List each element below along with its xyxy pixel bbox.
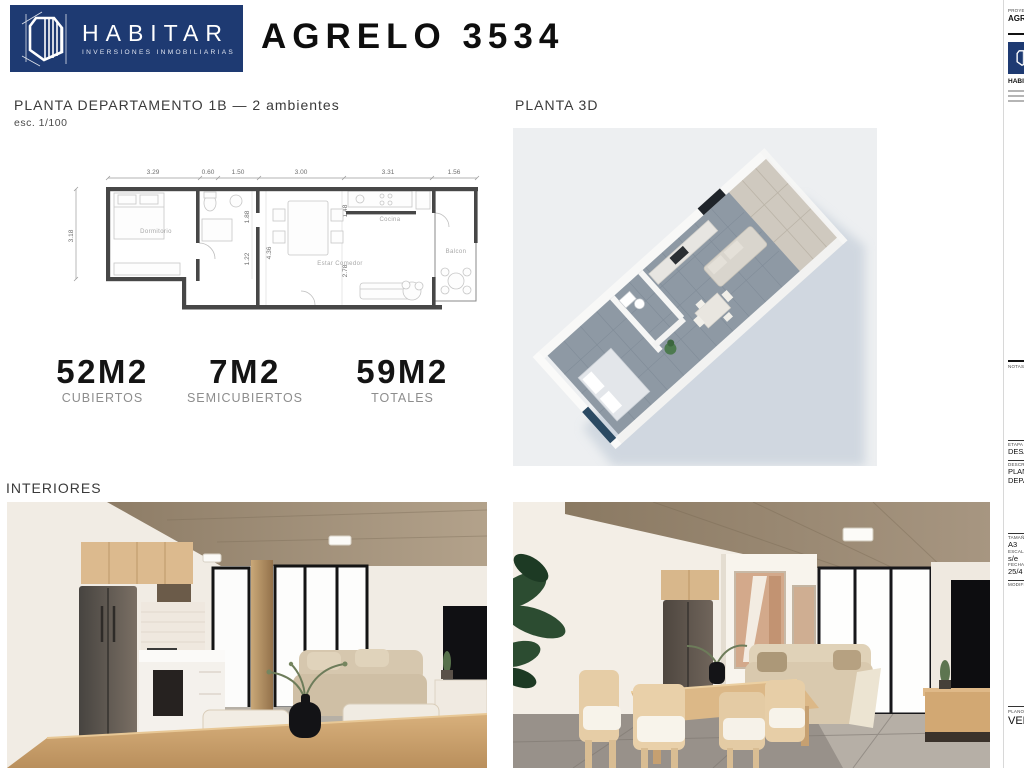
dim-inner-3: 4.36: [266, 246, 273, 259]
titleblock-notes-label: NOTAS: [1008, 364, 1024, 369]
area-cubiertos: 52M2 CUBIERTOS: [40, 355, 165, 405]
titleblock-date-value: 25/4: [1008, 567, 1023, 576]
floor-plan-drawing: 3.29 0.60 1.50 3.00 3.31 1.56 3.18 1.88 …: [60, 165, 490, 340]
habitar-house-icon: [18, 10, 76, 68]
area-semicubiertos-value: 7M2: [209, 355, 281, 388]
titleblock-sheet-value: VENTA: [1008, 715, 1024, 727]
titleblock-divider: [1008, 533, 1024, 534]
brochure-sheet: HABITAR INVERSIONES INMOBILIARIAS AGRELO…: [0, 0, 1024, 768]
interiores-title: INTERIORES: [6, 480, 102, 496]
area-totales-label: TOTALES: [371, 391, 434, 405]
dim-top-6: 1.56: [448, 169, 461, 176]
titleblock-brand: HABITAR: [1008, 78, 1024, 85]
room-label-dormitorio: Dormitorio: [140, 229, 172, 235]
area-cubiertos-label: CUBIERTOS: [62, 391, 143, 405]
titleblock-address-line: [1008, 95, 1024, 97]
titleblock-divider: [1008, 460, 1024, 461]
titleblock-size-value: A3: [1008, 540, 1017, 549]
titleblock-description-value: PLANTA: [1008, 467, 1024, 476]
brand-subtitle: INVERSIONES INMOBILIARIAS: [82, 49, 235, 56]
titleblock-address-line: [1008, 100, 1024, 102]
brand-name: HABITAR: [82, 22, 235, 45]
planta-3d-render: [513, 128, 877, 466]
area-cubiertos-value: 52M2: [56, 355, 149, 388]
room-label-balcon: Balcon: [446, 249, 467, 255]
dim-inner-1: 1.88: [244, 210, 251, 223]
interior-render-living: [513, 502, 990, 768]
area-semicubiertos-label: SEMICUBIERTOS: [187, 391, 303, 405]
dim-top-5: 3.31: [382, 169, 395, 176]
titleblock-sheet-label: PLANO N: [1008, 709, 1024, 714]
area-totales: 59M2 TOTALES: [330, 355, 475, 405]
titleblock-divider: [1008, 440, 1024, 441]
interior-render-kitchen: [7, 502, 487, 768]
dim-left: 3.18: [68, 229, 75, 242]
titleblock-sidebar: PROYECTO AGRELO 3534 HABITAR NOTAS ETAPA…: [1003, 0, 1024, 768]
dim-top-1: 3.29: [147, 169, 160, 176]
titleblock-divider: [1008, 33, 1024, 35]
titleblock-house-icon: [1013, 48, 1024, 68]
titleblock-project-value: AGRELO 3534: [1008, 14, 1024, 23]
planta3d-title: PLANTA 3D: [515, 97, 598, 113]
titleblock-divider: [1008, 580, 1024, 581]
area-totales-value: 59M2: [356, 355, 449, 388]
dim-top-3: 1.50: [232, 169, 245, 176]
titleblock-project-label: PROYECTO: [1008, 8, 1024, 13]
dim-top-4: 3.00: [295, 169, 308, 176]
plan-section-title: PLANTA DEPARTAMENTO 1B — 2 ambientes: [14, 97, 340, 113]
titleblock-description-value: DEPARTAMENTO: [1008, 476, 1024, 485]
habitar-logo: HABITAR INVERSIONES INMOBILIARIAS: [10, 5, 243, 72]
titleblock-divider: [1008, 360, 1024, 362]
plan-scale-note: esc. 1/100: [14, 117, 67, 129]
dim-inner-2: 1.22: [244, 252, 251, 265]
titleblock-stage-value: DESARROLLO: [1008, 447, 1024, 456]
room-label-cocina: Cocina: [379, 217, 400, 223]
sheet-title: AGRELO 3534: [261, 17, 564, 57]
titleblock-address-line: [1008, 90, 1024, 92]
area-semicubiertos: 7M2 SEMICUBIERTOS: [165, 355, 325, 405]
titleblock-modifications-label: MODIFICACIONES: [1008, 582, 1024, 587]
dim-top-2: 0.60: [202, 169, 215, 176]
room-label-estar: Estar Comedor: [317, 261, 363, 267]
titleblock-divider: [1008, 706, 1024, 707]
titleblock-logo: [1008, 42, 1024, 74]
